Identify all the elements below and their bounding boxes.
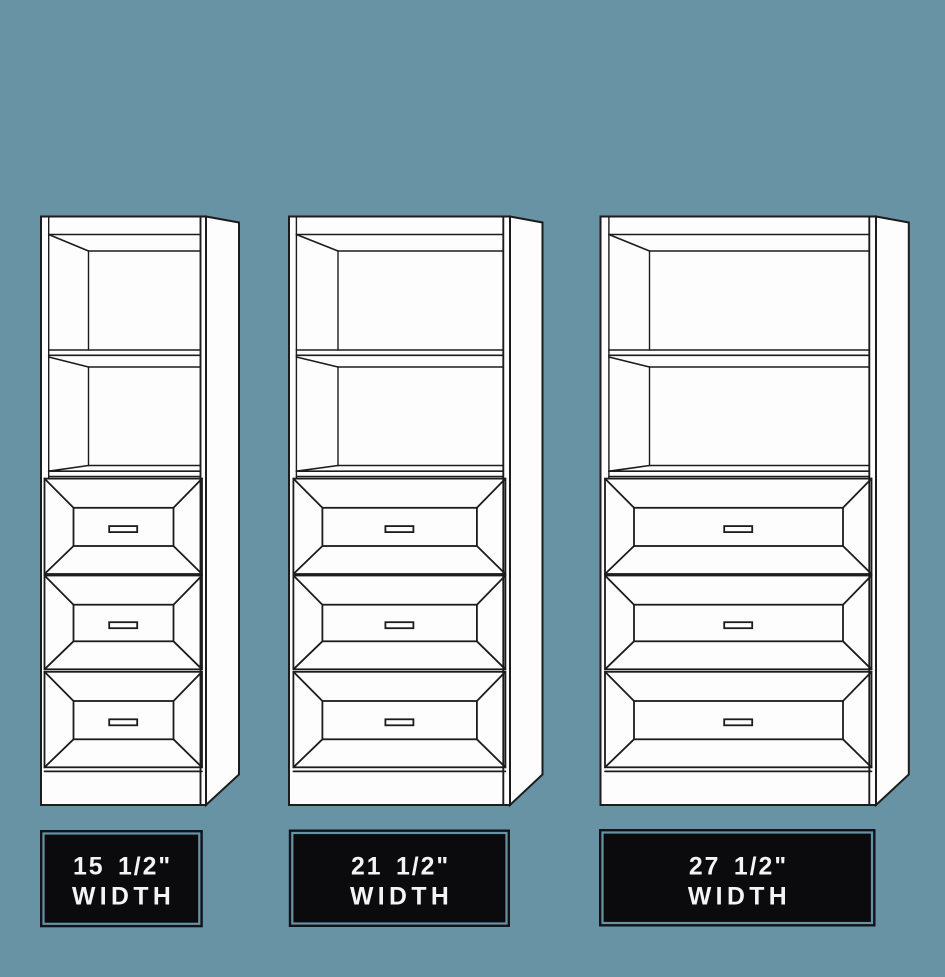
svg-text:27 1/2": 27 1/2" [689, 854, 788, 881]
svg-text:WIDTH: WIDTH [72, 884, 175, 911]
svg-text:15 1/2": 15 1/2" [73, 854, 172, 881]
svg-text:WIDTH: WIDTH [350, 884, 453, 911]
svg-text:21 1/2": 21 1/2" [351, 854, 450, 881]
svg-text:WIDTH: WIDTH [688, 884, 791, 911]
